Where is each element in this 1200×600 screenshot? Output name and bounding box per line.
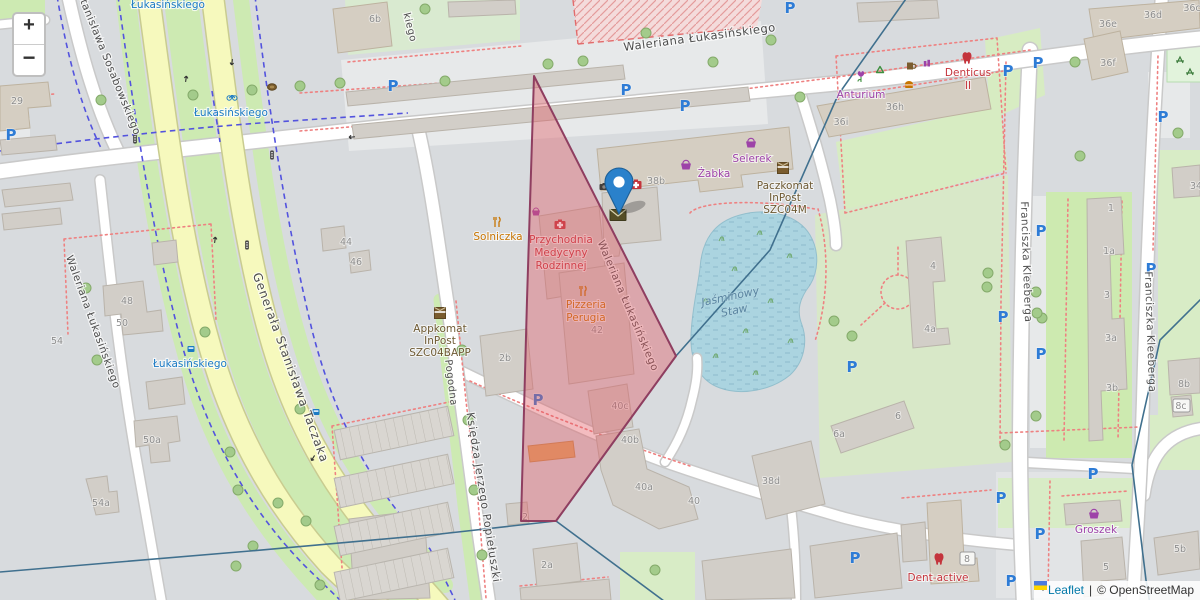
house-number-plate: 8 xyxy=(960,552,975,565)
traffic-light-icon xyxy=(270,151,274,160)
bus-stop-icon xyxy=(188,346,195,352)
house-number: 36f xyxy=(1100,58,1116,69)
house-number: 8b xyxy=(1178,379,1190,390)
house-number: 44 xyxy=(340,237,352,248)
parking-icon: P xyxy=(850,549,861,567)
poi-label: Appkomat xyxy=(413,323,466,335)
parking-icon: P xyxy=(6,126,17,144)
poi-label: Solniczka xyxy=(473,231,522,243)
house-number: 4a xyxy=(924,324,936,335)
house-number: 3 xyxy=(1104,290,1110,301)
house-number: 1a xyxy=(1103,246,1115,257)
zoom-control: + − xyxy=(12,12,46,77)
house-number: 40a xyxy=(635,482,653,493)
fast-food-icon xyxy=(905,81,913,88)
ukraine-flag-icon xyxy=(1042,589,1044,591)
bus-stop-label: Łukasińskiego xyxy=(193,107,268,119)
poi-label: Selerek xyxy=(732,153,772,165)
parking-icon: P xyxy=(1088,465,1099,483)
parking-icon: P xyxy=(847,358,858,376)
parcel-locker-icon xyxy=(778,163,789,174)
attribution-separator: | xyxy=(1089,583,1092,597)
house-number: 36c xyxy=(1183,3,1200,14)
parking-icon: P xyxy=(1003,62,1014,80)
house-number: 38b xyxy=(647,176,665,187)
map-canvas[interactable]: Waleriana Łukasińskiego Przychodnia Medy… xyxy=(0,0,1200,600)
svg-text:8c: 8c xyxy=(1175,401,1186,412)
house-number-plate: 8c xyxy=(1173,399,1190,412)
parcel-locker-icon xyxy=(435,308,446,319)
parking-icon: P xyxy=(388,77,399,95)
house-number: 6 xyxy=(895,411,901,422)
parking-icon: P xyxy=(996,489,1007,507)
poi-label: Anturium xyxy=(837,89,886,101)
house-number: 29 xyxy=(11,96,23,107)
house-number: 36e xyxy=(1099,19,1117,30)
house-number: 36d xyxy=(1144,10,1162,21)
house-number: 54 xyxy=(51,336,63,347)
poi-label: Dent-active xyxy=(907,572,968,584)
house-number: 6b xyxy=(369,14,381,25)
poi-label: InPost xyxy=(769,192,801,204)
house-number: 5 xyxy=(1103,562,1109,573)
poi-label: Groszek xyxy=(1075,524,1118,536)
zoom-in-button[interactable]: + xyxy=(14,14,44,45)
parking-icon: P xyxy=(1006,572,1017,590)
house-number: 3a xyxy=(1105,333,1117,344)
house-number: 3b xyxy=(1106,383,1118,394)
parking-icon: P xyxy=(621,81,632,99)
parking-icon: P xyxy=(1036,222,1047,240)
house-number: 46 xyxy=(350,257,362,268)
house-number: 40b xyxy=(621,435,639,446)
house-number: 48 xyxy=(121,296,133,307)
parking-icon: P xyxy=(1035,525,1046,543)
zoom-out-button[interactable]: − xyxy=(14,45,44,75)
poi-label: Paczkomat xyxy=(757,180,814,192)
poi-label: SZC04BAPP xyxy=(409,347,471,359)
house-number: 2b xyxy=(499,353,511,364)
house-number: 40 xyxy=(688,496,700,507)
house-number: 6a xyxy=(833,429,845,440)
poi-label: Denticus xyxy=(945,67,991,79)
house-number: 5b xyxy=(1174,544,1186,555)
house-number: 36h xyxy=(886,102,904,113)
house-number: 38d xyxy=(762,476,780,487)
parking-icon: P xyxy=(680,97,691,115)
house-number: 34 xyxy=(1190,181,1200,192)
leaflet-link[interactable]: Leaflet xyxy=(1048,583,1084,597)
parking-icon: P xyxy=(998,308,1009,326)
poi-dot-icon xyxy=(268,84,277,90)
house-number: 50a xyxy=(143,435,161,446)
poi-label: Żabka xyxy=(698,167,731,180)
poi-label: SZC04M xyxy=(763,204,807,216)
traffic-light-icon xyxy=(245,241,249,250)
openstreetmap-link[interactable]: © OpenStreetMap xyxy=(1097,583,1194,597)
playground-area xyxy=(1167,46,1200,82)
parking-icon: P xyxy=(1033,54,1044,72)
house-number: 1 xyxy=(1108,203,1114,214)
svg-text:8: 8 xyxy=(964,554,970,565)
parking-icon: P xyxy=(1158,108,1169,126)
parking-icon: P xyxy=(1036,345,1047,363)
bus-stop-label: Łukasińskiego xyxy=(152,358,227,370)
house-number: 2a xyxy=(541,560,553,571)
map-tiles: Waleriana Łukasińskiego Przychodnia Medy… xyxy=(0,0,1200,600)
poi-label: II xyxy=(965,80,971,92)
house-number: 54a xyxy=(92,498,110,509)
house-number: 36i xyxy=(834,117,849,128)
parking-icon: P xyxy=(785,0,796,17)
attribution-bar: Leaflet | © OpenStreetMap xyxy=(1034,581,1200,600)
bus-stop-label: Łukasińskiego xyxy=(130,0,205,11)
house-number: 4 xyxy=(930,261,936,272)
house-number: 50 xyxy=(116,318,128,329)
poi-label: InPost xyxy=(424,335,456,347)
